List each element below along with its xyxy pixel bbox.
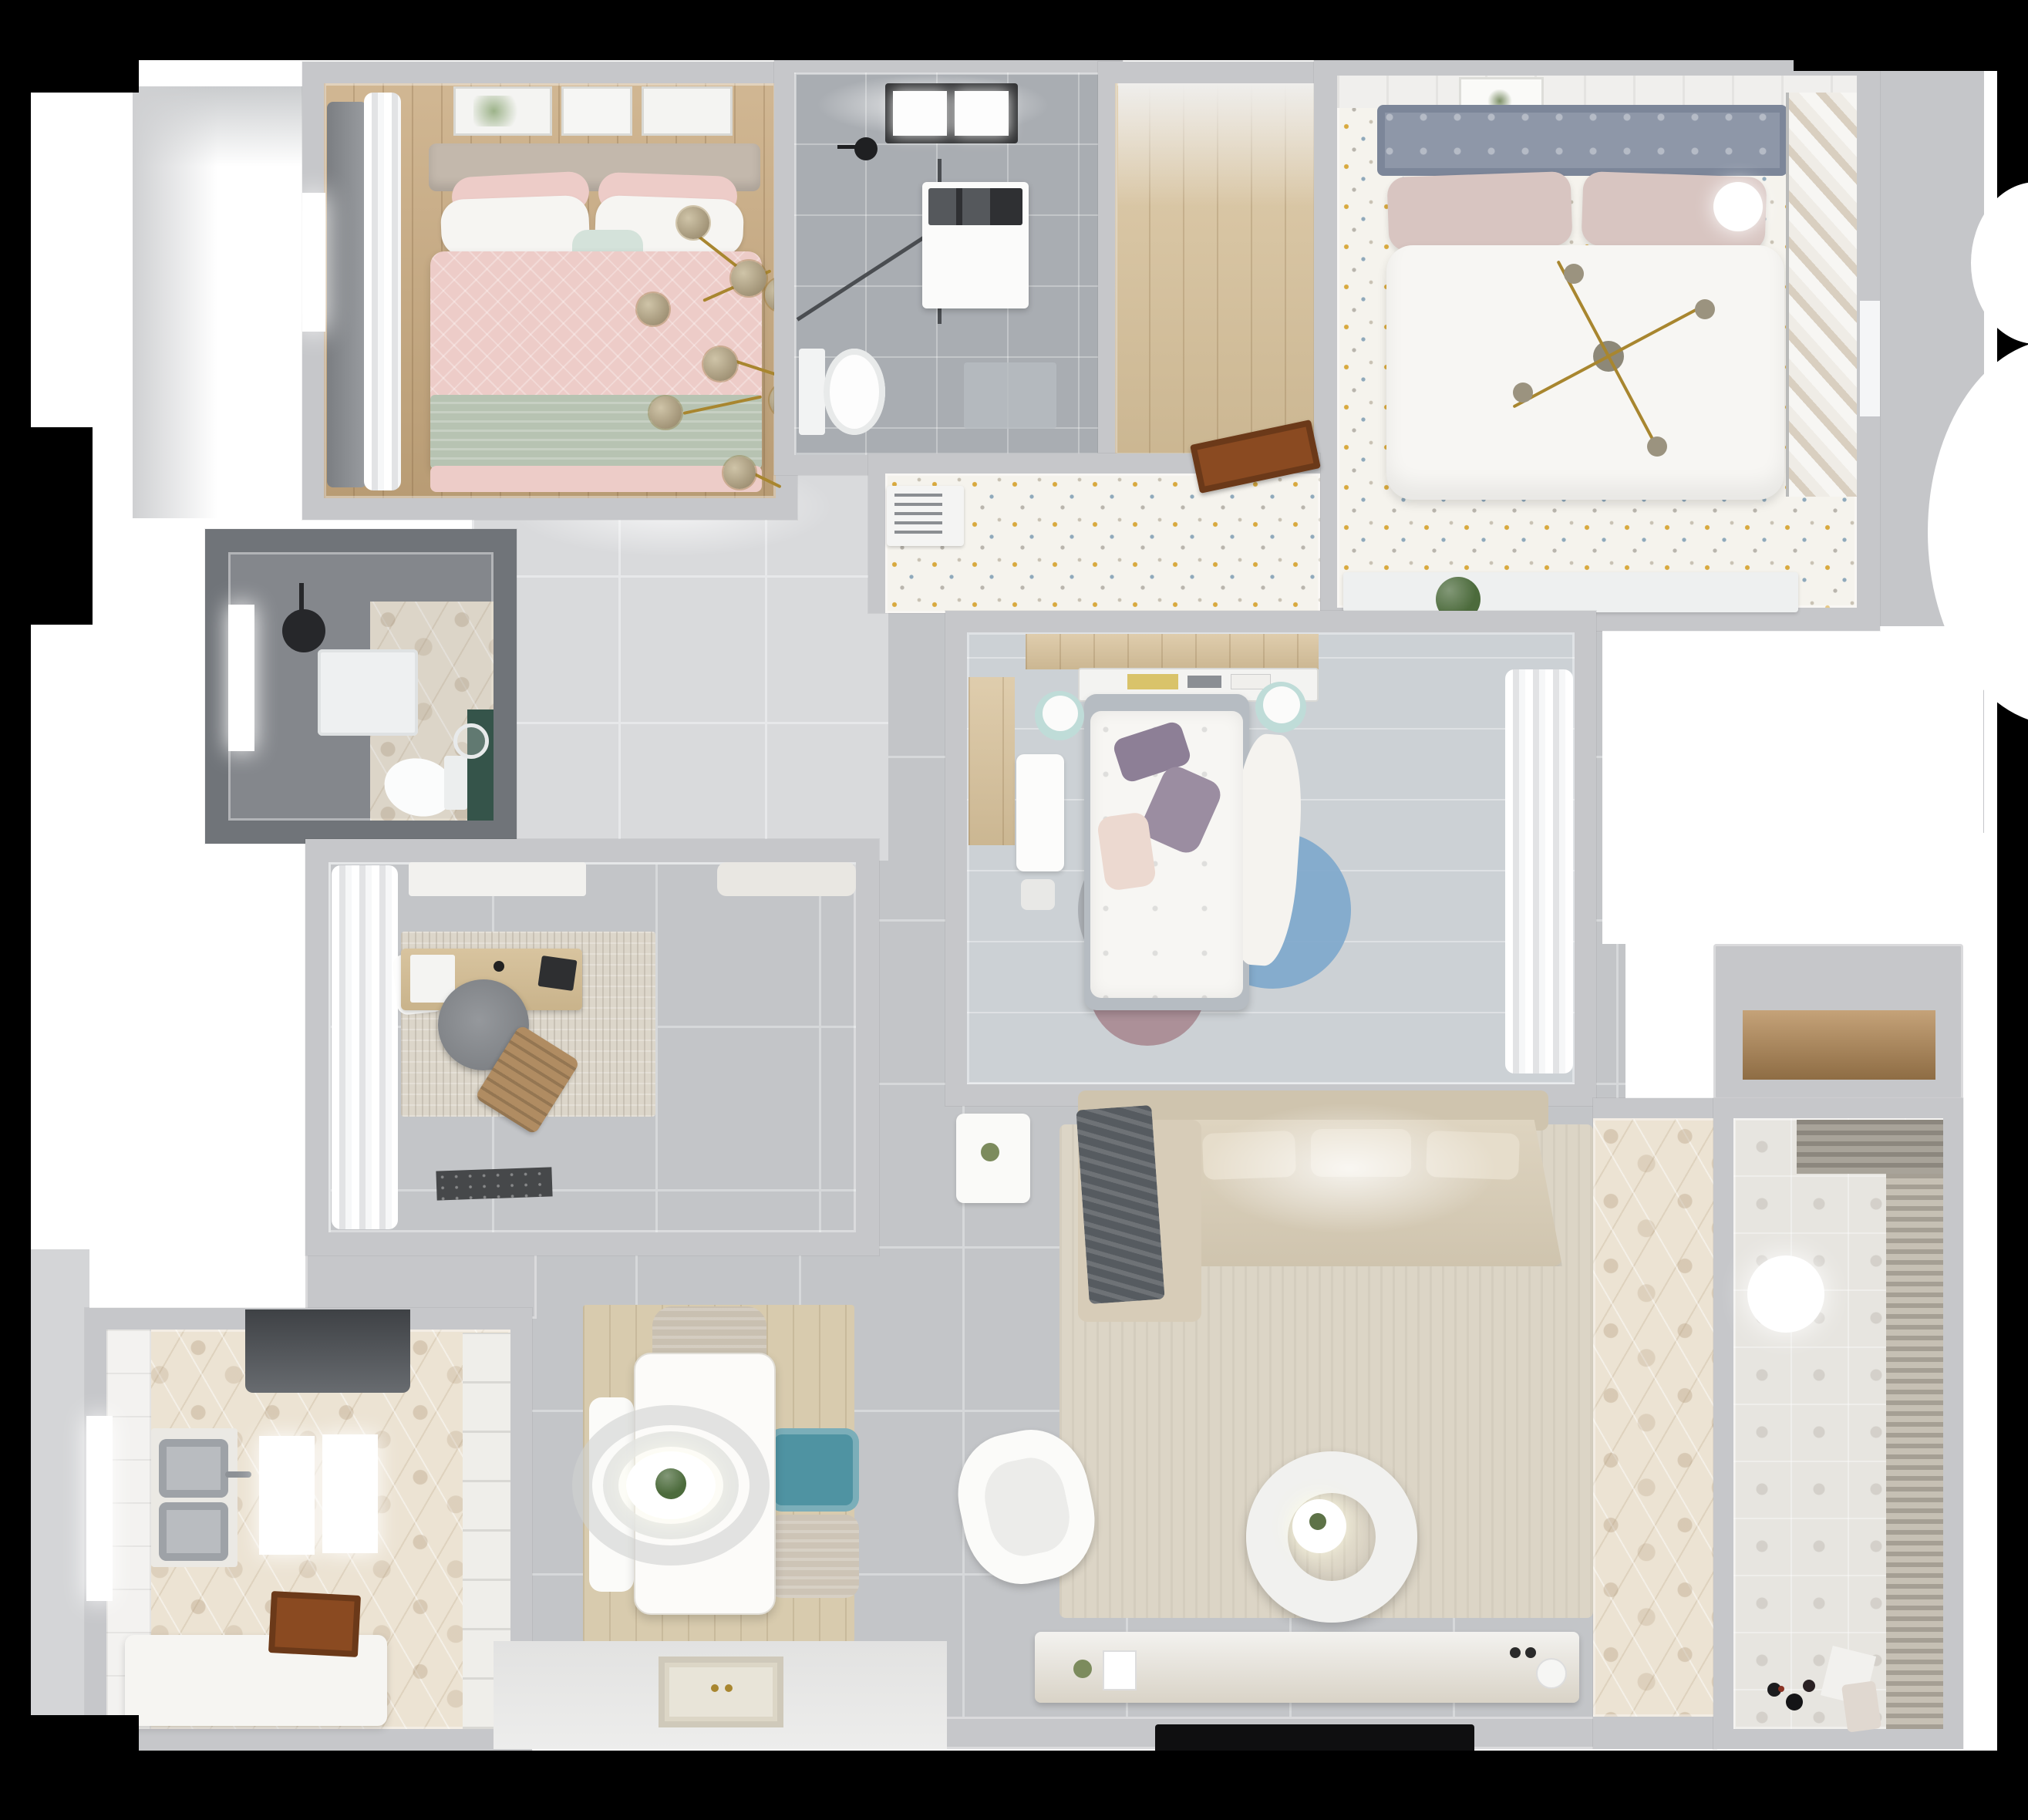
bedroom-center-desk [1016, 754, 1064, 871]
shower-dark-window [228, 605, 254, 751]
sofa-throw-blanket [1076, 1105, 1164, 1304]
toy-dot [1803, 1680, 1815, 1692]
laptop [537, 956, 577, 991]
entry-doormat [659, 1657, 783, 1727]
dining-chair-beige [768, 1515, 859, 1598]
bedroom-pink-art-frame-2 [561, 86, 632, 136]
worktop-light-panel [322, 1434, 378, 1553]
study-wall-cabinet [409, 862, 586, 896]
mask-top-left [0, 0, 139, 93]
chandelier-bulb [649, 396, 682, 429]
vent-louver-icon [894, 494, 942, 538]
mask-top [0, 0, 2028, 60]
bedroom-pink-sheer-curtain [364, 93, 401, 490]
skylight-pane [893, 91, 947, 136]
sink-basin-1 [159, 1439, 228, 1498]
desk-mouse [494, 961, 504, 972]
chandelier-bulb [677, 207, 709, 239]
chandelier-bulb [637, 293, 669, 325]
bedroom-master-side-door [1860, 301, 1880, 416]
nook-ceiling-sheen [1118, 83, 1319, 207]
outside-shade-left [133, 86, 217, 518]
console-plant-small [1073, 1660, 1092, 1678]
doormat-gold-key [711, 1684, 719, 1692]
pillow-blush-center [1097, 811, 1157, 891]
dome-lamp-icon [282, 609, 325, 652]
shelf-book [1187, 676, 1221, 688]
toilet-tank [799, 349, 825, 435]
shelf-book [1127, 674, 1178, 689]
desk-stool [1021, 879, 1055, 910]
pillow-white-left [440, 195, 590, 258]
console-knob [1510, 1647, 1521, 1658]
toy-dot [1786, 1694, 1803, 1710]
range-hood [245, 1309, 410, 1393]
console-knob [1525, 1647, 1536, 1658]
chandelier-bulb [723, 457, 756, 489]
sphere-lamp [1713, 182, 1763, 231]
bedroom-pink-window [302, 193, 325, 332]
kitchen-window [86, 1416, 113, 1601]
chandelier-knob [1513, 383, 1533, 403]
bedroom-pink-art-frame-3 [642, 86, 733, 136]
kitchen-faucet [225, 1471, 251, 1478]
white-patch-right-of-bedroom-center [1602, 626, 1983, 944]
washer-control-band [928, 188, 1022, 225]
bedroom-center-wood-patch [1026, 634, 1319, 669]
worktop-light-panel [259, 1436, 315, 1555]
side-table-plant-dot [981, 1143, 999, 1161]
round-mirror [453, 723, 489, 759]
kitchen-entry-door-leaf [268, 1591, 361, 1657]
art-plant-motif [473, 96, 524, 126]
study-curtains [332, 865, 398, 1229]
shower-tray [318, 649, 418, 736]
coffee-table-sprig [1309, 1513, 1326, 1530]
shower-head-icon [854, 137, 878, 160]
outside-shade-kitchen [31, 1249, 89, 1743]
niche-wood-shelf [1743, 1010, 1935, 1080]
mask-left-blob [0, 427, 93, 625]
bedroom-master-console [1343, 572, 1798, 612]
bath-mat [964, 362, 1056, 429]
bedroom-master-wall-paneling [1337, 76, 1857, 108]
mask-bottom [0, 1751, 2028, 1820]
duvet-pink-foot [430, 466, 762, 492]
sink-basin-2 [159, 1502, 228, 1561]
study-door-mat [436, 1167, 552, 1200]
bedroom-center-sheer-wardrobe [1505, 669, 1573, 1073]
toilet-tank-dark-bath [444, 756, 467, 810]
balcony-ceiling-light [1747, 1255, 1824, 1333]
dining-chair-teal [768, 1428, 859, 1512]
skylight-pane [955, 91, 1009, 136]
mask-bottom-left [0, 1715, 139, 1820]
hex-transition-strip [1593, 1098, 1716, 1749]
console-white-box [1103, 1650, 1137, 1690]
shower-arm [837, 145, 857, 149]
pillow-blush-left [1386, 171, 1572, 251]
mint-side-table-right-top [1263, 686, 1300, 723]
dome-lamp-stem [299, 583, 304, 611]
balcony-blinds [1886, 1120, 1943, 1729]
balcony-blind-roll [1797, 1120, 1943, 1174]
toy-dot-red [1778, 1686, 1784, 1692]
chandelier-bulb [731, 261, 766, 296]
chandelier-knob [1695, 299, 1715, 319]
study-ledge [717, 862, 856, 896]
duvet-white [1386, 245, 1784, 500]
wardrobe-slatted [1786, 93, 1857, 497]
floor-plan-render [0, 0, 2028, 1820]
chandelier-knob [1564, 264, 1584, 284]
balcony-small-bag [1841, 1680, 1881, 1733]
bedroom-master-headboard [1377, 105, 1787, 176]
chandelier-bulb [703, 347, 737, 381]
doormat-gold-key [725, 1684, 733, 1692]
sofa-ceiling-glow [1203, 1103, 1496, 1234]
console-round-speaker [1536, 1658, 1567, 1689]
mint-side-table-left-top [1043, 696, 1078, 731]
bedroom-pink-curtain-panel [327, 102, 367, 487]
toilet-bowl [824, 349, 885, 435]
closet-wood-strip [969, 677, 1015, 845]
mask-top-right [1794, 0, 2028, 71]
chandelier-knob [1647, 436, 1667, 457]
